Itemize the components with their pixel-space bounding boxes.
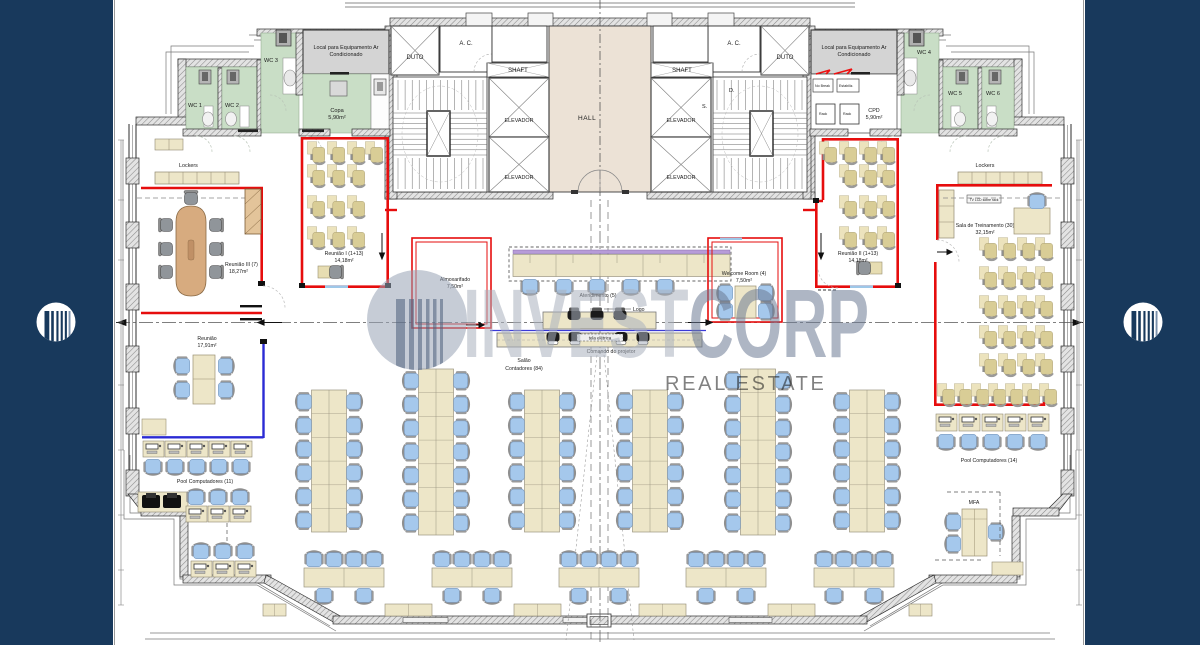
svg-text:WC 6: WC 6 (986, 91, 1000, 97)
svg-text:Rack: Rack (843, 112, 851, 116)
svg-text:Lockers: Lockers (976, 163, 995, 169)
svg-text:CPD: CPD (868, 108, 879, 114)
svg-text:Pool Computadores (11): Pool Computadores (11) (177, 479, 233, 485)
svg-text:ELEVADOR: ELEVADOR (667, 118, 696, 124)
svg-text:WC 2: WC 2 (225, 103, 239, 109)
svg-text:D.: D. (729, 88, 735, 94)
svg-text:MFA: MFA (969, 500, 980, 506)
svg-text:Reunião II (1+13): Reunião II (1+13) (838, 251, 879, 257)
svg-text:Lockers: Lockers (179, 163, 198, 169)
svg-text:14,18m²: 14,18m² (848, 258, 867, 264)
svg-text:DUTO: DUTO (407, 55, 424, 61)
svg-text:Local para Equipamento Ar: Local para Equipamento Ar (821, 45, 886, 51)
svg-text:14,18m²: 14,18m² (334, 258, 353, 264)
svg-text:WC 1: WC 1 (188, 103, 202, 109)
svg-text:Reunião III (7): Reunião III (7) (225, 262, 258, 268)
svg-text:DUTO: DUTO (777, 55, 794, 61)
svg-text:Reunião I (1+13): Reunião I (1+13) (325, 251, 364, 257)
svg-text:No Break: No Break (815, 84, 830, 88)
svg-text:32,15m²: 32,15m² (975, 230, 994, 236)
svg-text:REAL ESTATE: REAL ESTATE (665, 373, 827, 395)
svg-text:ELEVADOR: ELEVADOR (505, 175, 534, 181)
svg-text:5,90m²: 5,90m² (328, 115, 346, 121)
svg-text:SHAFT: SHAFT (508, 68, 528, 74)
svg-text:Reunião: Reunião (197, 336, 216, 342)
svg-text:Estabiliz.: Estabiliz. (839, 84, 853, 88)
svg-text:18,27m²: 18,27m² (229, 269, 248, 275)
svg-text:TV LCD sobre rack: TV LCD sobre rack (970, 198, 999, 202)
svg-text:5,90m²: 5,90m² (866, 115, 883, 121)
svg-text:ELEVADOR: ELEVADOR (505, 118, 534, 124)
svg-text:INVESTCORP: INVESTCORP (463, 269, 869, 378)
svg-text:A. C.: A. C. (459, 41, 473, 47)
svg-text:WC 3: WC 3 (264, 58, 278, 64)
svg-text:Sala de Treinamento (30): Sala de Treinamento (30) (956, 223, 1015, 229)
svg-text:Condicionado: Condicionado (330, 52, 363, 58)
svg-text:Pool Computadores (14): Pool Computadores (14) (961, 458, 1018, 464)
svg-text:WC 4: WC 4 (917, 50, 931, 56)
svg-text:WC 5: WC 5 (948, 91, 962, 97)
svg-text:17,91m²: 17,91m² (197, 343, 216, 349)
svg-text:Condicionado: Condicionado (838, 52, 871, 58)
svg-text:ELEVADOR: ELEVADOR (667, 175, 696, 181)
svg-text:S.: S. (702, 104, 708, 110)
svg-text:Copa: Copa (330, 108, 344, 114)
svg-text:A. C.: A. C. (727, 41, 741, 47)
svg-text:SHAFT: SHAFT (672, 68, 692, 74)
svg-text:HALL: HALL (578, 115, 596, 122)
svg-text:Rack: Rack (819, 112, 827, 116)
svg-text:Local para Equipamento Ar: Local para Equipamento Ar (313, 45, 378, 51)
